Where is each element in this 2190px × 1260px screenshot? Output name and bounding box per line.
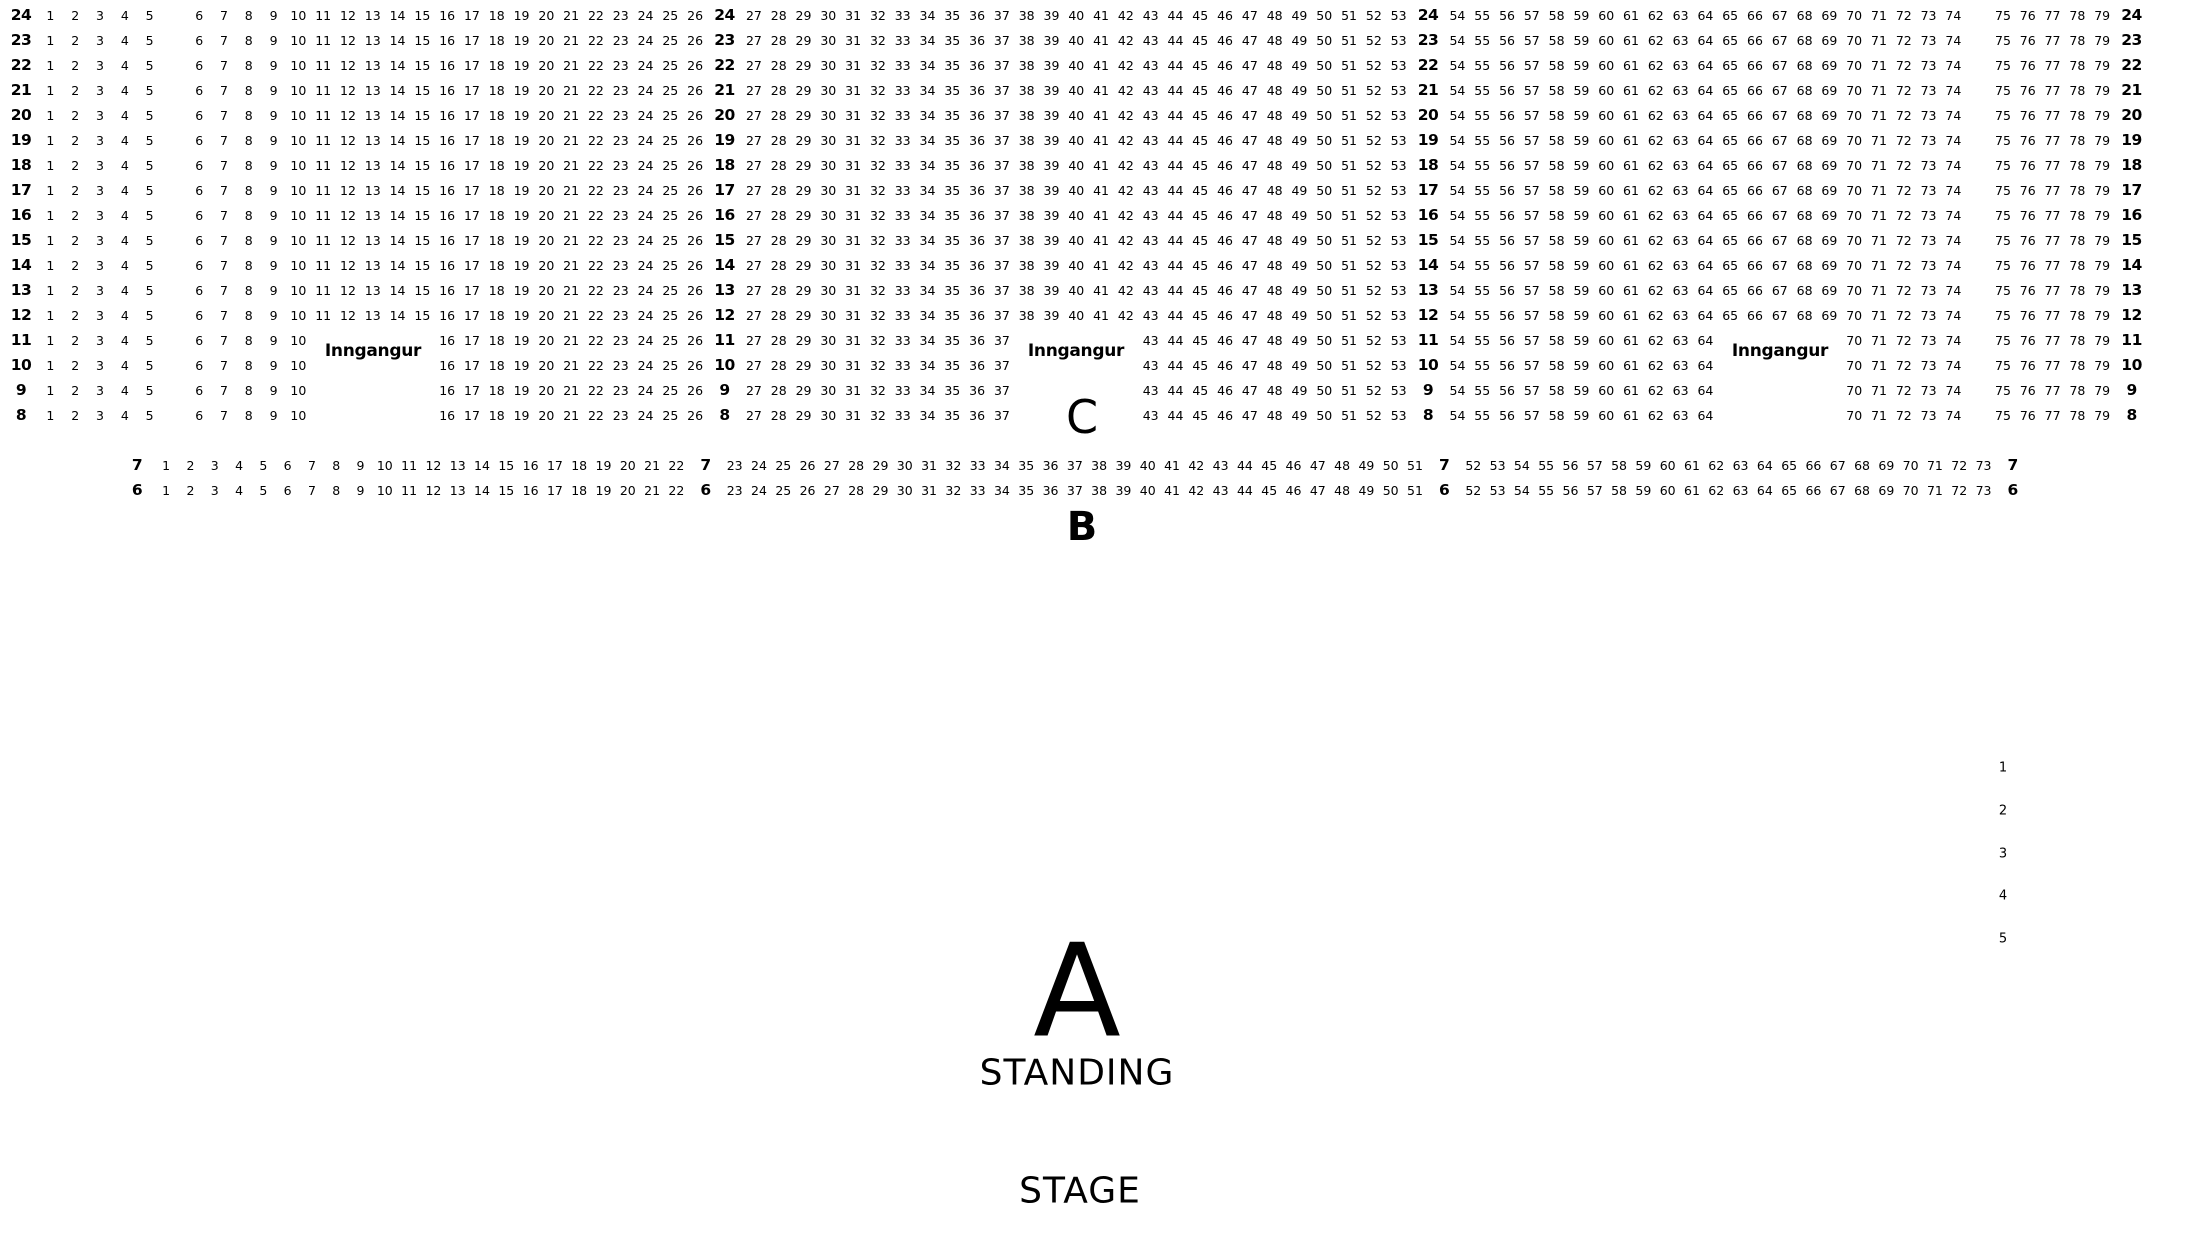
seat-row14-58[interactable]: 58 — [1544, 253, 1569, 278]
seat-row15-51[interactable]: 51 — [1337, 228, 1362, 253]
seat-row16-4[interactable]: 4 — [112, 203, 137, 228]
seat-row21-26[interactable]: 26 — [683, 78, 708, 103]
seat-row14-53[interactable]: 53 — [1386, 253, 1411, 278]
seat-row11-30[interactable]: 30 — [816, 328, 841, 353]
seat-row20-12[interactable]: 12 — [336, 103, 361, 128]
seat-row9-22[interactable]: 22 — [584, 378, 609, 403]
seat-row9-5[interactable]: 5 — [137, 378, 162, 403]
seat-row8-44[interactable]: 44 — [1163, 403, 1188, 428]
seat-row15-66[interactable]: 66 — [1743, 228, 1768, 253]
seat-row17-12[interactable]: 12 — [336, 178, 361, 203]
seat-row6-40[interactable]: 40 — [1136, 478, 1160, 503]
seat-row13-4[interactable]: 4 — [112, 278, 137, 303]
seat-row22-44[interactable]: 44 — [1163, 53, 1188, 78]
seat-row21-38[interactable]: 38 — [1014, 78, 1039, 103]
seat-row14-60[interactable]: 60 — [1594, 253, 1619, 278]
seat-row14-13[interactable]: 13 — [360, 253, 385, 278]
seat-row15-76[interactable]: 76 — [2015, 228, 2040, 253]
seat-row22-79[interactable]: 79 — [2090, 53, 2115, 78]
seat-row8-59[interactable]: 59 — [1569, 403, 1594, 428]
seat-row21-27[interactable]: 27 — [742, 78, 767, 103]
seat-row13-31[interactable]: 31 — [841, 278, 866, 303]
seat-row23-10[interactable]: 10 — [286, 28, 311, 53]
seat-row23-49[interactable]: 49 — [1287, 28, 1312, 53]
seat-row20-67[interactable]: 67 — [1767, 103, 1792, 128]
seat-row19-46[interactable]: 46 — [1213, 128, 1238, 153]
seat-row7-61[interactable]: 61 — [1680, 453, 1704, 478]
seat-row21-24[interactable]: 24 — [633, 78, 658, 103]
seat-row18-19[interactable]: 19 — [509, 153, 534, 178]
seat-row21-65[interactable]: 65 — [1718, 78, 1743, 103]
seat-row24-64[interactable]: 64 — [1693, 3, 1718, 28]
seat-row7-16[interactable]: 16 — [518, 453, 542, 478]
seat-row15-20[interactable]: 20 — [534, 228, 559, 253]
seat-row22-10[interactable]: 10 — [286, 53, 311, 78]
seat-row11-62[interactable]: 62 — [1643, 328, 1668, 353]
seat-row17-7[interactable]: 7 — [212, 178, 237, 203]
seat-row19-26[interactable]: 26 — [683, 128, 708, 153]
seat-row7-49[interactable]: 49 — [1354, 453, 1378, 478]
seat-row16-68[interactable]: 68 — [1792, 203, 1817, 228]
seat-row12-59[interactable]: 59 — [1569, 303, 1594, 328]
seat-row21-56[interactable]: 56 — [1495, 78, 1520, 103]
seat-row11-58[interactable]: 58 — [1544, 328, 1569, 353]
seat-row7-23[interactable]: 23 — [723, 453, 747, 478]
seat-row8-61[interactable]: 61 — [1619, 403, 1644, 428]
seat-row24-79[interactable]: 79 — [2090, 3, 2115, 28]
seat-row24-73[interactable]: 73 — [1916, 3, 1941, 28]
seat-row9-34[interactable]: 34 — [915, 378, 940, 403]
seat-row15-53[interactable]: 53 — [1386, 228, 1411, 253]
seat-row22-50[interactable]: 50 — [1312, 53, 1337, 78]
seat-row17-35[interactable]: 35 — [940, 178, 965, 203]
seat-row8-79[interactable]: 79 — [2090, 403, 2115, 428]
seat-row17-71[interactable]: 71 — [1867, 178, 1892, 203]
seat-row20-26[interactable]: 26 — [683, 103, 708, 128]
seat-row15-46[interactable]: 46 — [1213, 228, 1238, 253]
seat-row22-19[interactable]: 19 — [509, 53, 534, 78]
seat-row10-75[interactable]: 75 — [1991, 353, 2016, 378]
seat-row18-27[interactable]: 27 — [742, 153, 767, 178]
seat-row15-62[interactable]: 62 — [1643, 228, 1668, 253]
seat-row18-73[interactable]: 73 — [1916, 153, 1941, 178]
seat-row14-33[interactable]: 33 — [890, 253, 915, 278]
seat-row6-17[interactable]: 17 — [543, 478, 567, 503]
seat-row15-75[interactable]: 75 — [1991, 228, 2016, 253]
seat-row22-53[interactable]: 53 — [1386, 53, 1411, 78]
seat-row10-72[interactable]: 72 — [1891, 353, 1916, 378]
seat-row14-20[interactable]: 20 — [534, 253, 559, 278]
seat-row19-33[interactable]: 33 — [890, 128, 915, 153]
seat-row17-22[interactable]: 22 — [584, 178, 609, 203]
seat-row18-44[interactable]: 44 — [1163, 153, 1188, 178]
seat-row15-2[interactable]: 2 — [63, 228, 88, 253]
seat-row17-53[interactable]: 53 — [1386, 178, 1411, 203]
seat-row22-27[interactable]: 27 — [742, 53, 767, 78]
seat-row22-68[interactable]: 68 — [1792, 53, 1817, 78]
seat-row17-55[interactable]: 55 — [1470, 178, 1495, 203]
seat-row24-75[interactable]: 75 — [1991, 3, 2016, 28]
seat-row7-17[interactable]: 17 — [543, 453, 567, 478]
seat-row20-75[interactable]: 75 — [1991, 103, 2016, 128]
seat-row20-79[interactable]: 79 — [2090, 103, 2115, 128]
seat-row14-45[interactable]: 45 — [1188, 253, 1213, 278]
seat-row23-73[interactable]: 73 — [1916, 28, 1941, 53]
seat-row17-64[interactable]: 64 — [1693, 178, 1718, 203]
seat-row24-9[interactable]: 9 — [261, 3, 286, 28]
seat-row14-35[interactable]: 35 — [940, 253, 965, 278]
seat-row6-64[interactable]: 64 — [1753, 478, 1777, 503]
seat-row7-52[interactable]: 52 — [1461, 453, 1485, 478]
seat-row12-18[interactable]: 18 — [484, 303, 509, 328]
seat-row10-17[interactable]: 17 — [460, 353, 485, 378]
seat-row19-39[interactable]: 39 — [1039, 128, 1064, 153]
seat-row13-44[interactable]: 44 — [1163, 278, 1188, 303]
seat-row10-26[interactable]: 26 — [683, 353, 708, 378]
seat-row12-62[interactable]: 62 — [1643, 303, 1668, 328]
seat-row23-67[interactable]: 67 — [1767, 28, 1792, 53]
seat-row12-26[interactable]: 26 — [683, 303, 708, 328]
seat-row22-33[interactable]: 33 — [890, 53, 915, 78]
seat-row20-76[interactable]: 76 — [2015, 103, 2040, 128]
seat-row19-41[interactable]: 41 — [1089, 128, 1114, 153]
seat-row7-21[interactable]: 21 — [640, 453, 664, 478]
seat-row12-48[interactable]: 48 — [1262, 303, 1287, 328]
seat-row16-31[interactable]: 31 — [841, 203, 866, 228]
seat-row7-34[interactable]: 34 — [990, 453, 1014, 478]
seat-row16-24[interactable]: 24 — [633, 203, 658, 228]
seat-row9-57[interactable]: 57 — [1519, 378, 1544, 403]
seat-row12-67[interactable]: 67 — [1767, 303, 1792, 328]
seat-row16-63[interactable]: 63 — [1668, 203, 1693, 228]
seat-row14-8[interactable]: 8 — [236, 253, 261, 278]
seat-row19-73[interactable]: 73 — [1916, 128, 1941, 153]
seat-row21-33[interactable]: 33 — [890, 78, 915, 103]
seat-row9-75[interactable]: 75 — [1991, 378, 2016, 403]
seat-row24-14[interactable]: 14 — [385, 3, 410, 28]
seat-row24-27[interactable]: 27 — [742, 3, 767, 28]
seat-row24-54[interactable]: 54 — [1445, 3, 1470, 28]
seat-row20-18[interactable]: 18 — [484, 103, 509, 128]
seat-row12-42[interactable]: 42 — [1113, 303, 1138, 328]
seat-row8-33[interactable]: 33 — [890, 403, 915, 428]
seat-row24-77[interactable]: 77 — [2040, 3, 2065, 28]
seat-row14-32[interactable]: 32 — [866, 253, 891, 278]
seat-row6-19[interactable]: 19 — [591, 478, 615, 503]
seat-row15-9[interactable]: 9 — [261, 228, 286, 253]
seat-row17-1[interactable]: 1 — [38, 178, 63, 203]
seat-row14-61[interactable]: 61 — [1619, 253, 1644, 278]
seat-row6-47[interactable]: 47 — [1306, 478, 1330, 503]
seat-row22-16[interactable]: 16 — [435, 53, 460, 78]
seat-row20-47[interactable]: 47 — [1237, 103, 1262, 128]
seat-row18-29[interactable]: 29 — [791, 153, 816, 178]
seat-row24-57[interactable]: 57 — [1519, 3, 1544, 28]
seat-row15-8[interactable]: 8 — [236, 228, 261, 253]
seat-row23-57[interactable]: 57 — [1519, 28, 1544, 53]
seat-row11-35[interactable]: 35 — [940, 328, 965, 353]
seat-row13-48[interactable]: 48 — [1262, 278, 1287, 303]
seat-row18-18[interactable]: 18 — [484, 153, 509, 178]
seat-row15-45[interactable]: 45 — [1188, 228, 1213, 253]
seat-row21-75[interactable]: 75 — [1991, 78, 2016, 103]
seat-row9-76[interactable]: 76 — [2015, 378, 2040, 403]
seat-row16-38[interactable]: 38 — [1014, 203, 1039, 228]
seat-row15-54[interactable]: 54 — [1445, 228, 1470, 253]
seat-row18-42[interactable]: 42 — [1113, 153, 1138, 178]
seat-row17-46[interactable]: 46 — [1213, 178, 1238, 203]
seat-row13-73[interactable]: 73 — [1916, 278, 1941, 303]
seat-row23-35[interactable]: 35 — [940, 28, 965, 53]
seat-row6-39[interactable]: 39 — [1111, 478, 1135, 503]
seat-row19-48[interactable]: 48 — [1262, 128, 1287, 153]
seat-row19-25[interactable]: 25 — [658, 128, 683, 153]
seat-row9-31[interactable]: 31 — [841, 378, 866, 403]
seat-row17-19[interactable]: 19 — [509, 178, 534, 203]
seat-row17-32[interactable]: 32 — [866, 178, 891, 203]
seat-row22-13[interactable]: 13 — [360, 53, 385, 78]
seat-row7-10[interactable]: 10 — [373, 453, 397, 478]
seat-row6-12[interactable]: 12 — [421, 478, 445, 503]
seat-row6-44[interactable]: 44 — [1233, 478, 1257, 503]
seat-row16-42[interactable]: 42 — [1113, 203, 1138, 228]
seat-row21-15[interactable]: 15 — [410, 78, 435, 103]
seat-row24-11[interactable]: 11 — [311, 3, 336, 28]
seat-row14-66[interactable]: 66 — [1743, 253, 1768, 278]
seat-row24-74[interactable]: 74 — [1941, 3, 1966, 28]
seat-row24-33[interactable]: 33 — [890, 3, 915, 28]
seat-row10-22[interactable]: 22 — [584, 353, 609, 378]
seat-row23-52[interactable]: 52 — [1361, 28, 1386, 53]
seat-row13-43[interactable]: 43 — [1138, 278, 1163, 303]
seat-row14-51[interactable]: 51 — [1337, 253, 1362, 278]
seat-row8-18[interactable]: 18 — [484, 403, 509, 428]
seat-row8-45[interactable]: 45 — [1188, 403, 1213, 428]
seat-row14-57[interactable]: 57 — [1519, 253, 1544, 278]
seat-row17-78[interactable]: 78 — [2065, 178, 2090, 203]
seat-row14-6[interactable]: 6 — [187, 253, 212, 278]
seat-row15-56[interactable]: 56 — [1495, 228, 1520, 253]
seat-row15-48[interactable]: 48 — [1262, 228, 1287, 253]
seat-row15-12[interactable]: 12 — [336, 228, 361, 253]
seat-row10-36[interactable]: 36 — [965, 353, 990, 378]
seat-row6-27[interactable]: 27 — [820, 478, 844, 503]
seat-row20-34[interactable]: 34 — [915, 103, 940, 128]
seat-row6-59[interactable]: 59 — [1631, 478, 1655, 503]
seat-row18-48[interactable]: 48 — [1262, 153, 1287, 178]
seat-row18-75[interactable]: 75 — [1991, 153, 2016, 178]
seat-row24-1[interactable]: 1 — [38, 3, 63, 28]
seat-row15-60[interactable]: 60 — [1594, 228, 1619, 253]
seat-row14-26[interactable]: 26 — [683, 253, 708, 278]
seat-row8-21[interactable]: 21 — [559, 403, 584, 428]
seat-row22-1[interactable]: 1 — [38, 53, 63, 78]
seat-row12-76[interactable]: 76 — [2015, 303, 2040, 328]
seat-row18-17[interactable]: 17 — [460, 153, 485, 178]
seat-row18-10[interactable]: 10 — [286, 153, 311, 178]
seat-row20-43[interactable]: 43 — [1138, 103, 1163, 128]
seat-row24-21[interactable]: 21 — [559, 3, 584, 28]
seat-row13-29[interactable]: 29 — [791, 278, 816, 303]
seat-row8-9[interactable]: 9 — [261, 403, 286, 428]
seat-row24-37[interactable]: 37 — [989, 3, 1014, 28]
seat-row11-5[interactable]: 5 — [137, 328, 162, 353]
seat-row24-19[interactable]: 19 — [509, 3, 534, 28]
seat-row18-2[interactable]: 2 — [63, 153, 88, 178]
seat-row18-52[interactable]: 52 — [1361, 153, 1386, 178]
seat-row24-70[interactable]: 70 — [1842, 3, 1867, 28]
seat-row20-1[interactable]: 1 — [38, 103, 63, 128]
seat-row17-79[interactable]: 79 — [2090, 178, 2115, 203]
seat-row20-16[interactable]: 16 — [435, 103, 460, 128]
seat-row23-8[interactable]: 8 — [236, 28, 261, 53]
seat-row10-64[interactable]: 64 — [1693, 353, 1718, 378]
seat-row16-8[interactable]: 8 — [236, 203, 261, 228]
seat-row9-1[interactable]: 1 — [38, 378, 63, 403]
seat-row6-6[interactable]: 6 — [275, 478, 299, 503]
seat-row20-33[interactable]: 33 — [890, 103, 915, 128]
seat-row13-63[interactable]: 63 — [1668, 278, 1693, 303]
seat-row16-5[interactable]: 5 — [137, 203, 162, 228]
seat-row10-25[interactable]: 25 — [658, 353, 683, 378]
seat-row18-26[interactable]: 26 — [683, 153, 708, 178]
seat-row18-65[interactable]: 65 — [1718, 153, 1743, 178]
seat-row20-8[interactable]: 8 — [236, 103, 261, 128]
seat-row14-29[interactable]: 29 — [791, 253, 816, 278]
seat-row15-21[interactable]: 21 — [559, 228, 584, 253]
seat-row13-27[interactable]: 27 — [742, 278, 767, 303]
seat-row9-60[interactable]: 60 — [1594, 378, 1619, 403]
seat-row16-53[interactable]: 53 — [1386, 203, 1411, 228]
seat-row24-12[interactable]: 12 — [336, 3, 361, 28]
seat-row13-47[interactable]: 47 — [1237, 278, 1262, 303]
seat-row11-61[interactable]: 61 — [1619, 328, 1644, 353]
seat-row11-43[interactable]: 43 — [1138, 328, 1163, 353]
seat-row10-73[interactable]: 73 — [1916, 353, 1941, 378]
seat-row23-45[interactable]: 45 — [1188, 28, 1213, 53]
seat-row11-55[interactable]: 55 — [1470, 328, 1495, 353]
seat-row9-18[interactable]: 18 — [484, 378, 509, 403]
seat-row23-48[interactable]: 48 — [1262, 28, 1287, 53]
seat-row8-1[interactable]: 1 — [38, 403, 63, 428]
seat-row24-32[interactable]: 32 — [866, 3, 891, 28]
seat-row10-1[interactable]: 1 — [38, 353, 63, 378]
seat-row10-62[interactable]: 62 — [1643, 353, 1668, 378]
seat-row7-1[interactable]: 1 — [154, 453, 178, 478]
seat-row20-24[interactable]: 24 — [633, 103, 658, 128]
seat-row21-67[interactable]: 67 — [1767, 78, 1792, 103]
seat-row14-42[interactable]: 42 — [1113, 253, 1138, 278]
seat-row9-37[interactable]: 37 — [990, 378, 1015, 403]
seat-row19-4[interactable]: 4 — [112, 128, 137, 153]
seat-row10-24[interactable]: 24 — [633, 353, 658, 378]
seat-row10-29[interactable]: 29 — [791, 353, 816, 378]
seat-row16-49[interactable]: 49 — [1287, 203, 1312, 228]
seat-row16-41[interactable]: 41 — [1089, 203, 1114, 228]
seat-row12-16[interactable]: 16 — [435, 303, 460, 328]
seat-row24-62[interactable]: 62 — [1643, 3, 1668, 28]
seat-row20-15[interactable]: 15 — [410, 103, 435, 128]
seat-row13-12[interactable]: 12 — [336, 278, 361, 303]
seat-row9-19[interactable]: 19 — [509, 378, 534, 403]
seat-row21-48[interactable]: 48 — [1262, 78, 1287, 103]
seat-row10-63[interactable]: 63 — [1668, 353, 1693, 378]
seat-row19-56[interactable]: 56 — [1495, 128, 1520, 153]
seat-row24-76[interactable]: 76 — [2015, 3, 2040, 28]
seat-row20-50[interactable]: 50 — [1312, 103, 1337, 128]
seat-row15-77[interactable]: 77 — [2040, 228, 2065, 253]
seat-row22-31[interactable]: 31 — [841, 53, 866, 78]
seat-row6-7[interactable]: 7 — [300, 478, 324, 503]
seat-row17-14[interactable]: 14 — [385, 178, 410, 203]
seat-row6-26[interactable]: 26 — [795, 478, 819, 503]
seat-row10-50[interactable]: 50 — [1312, 353, 1337, 378]
seat-row15-61[interactable]: 61 — [1619, 228, 1644, 253]
seat-row21-29[interactable]: 29 — [791, 78, 816, 103]
seat-row11-7[interactable]: 7 — [212, 328, 237, 353]
seat-row16-66[interactable]: 66 — [1743, 203, 1768, 228]
seat-row8-75[interactable]: 75 — [1991, 403, 2016, 428]
seat-row22-6[interactable]: 6 — [187, 53, 212, 78]
seat-row20-57[interactable]: 57 — [1519, 103, 1544, 128]
seat-row13-19[interactable]: 19 — [509, 278, 534, 303]
seat-row15-19[interactable]: 19 — [509, 228, 534, 253]
seat-row20-3[interactable]: 3 — [88, 103, 113, 128]
seat-row21-68[interactable]: 68 — [1792, 78, 1817, 103]
seat-row24-40[interactable]: 40 — [1064, 3, 1089, 28]
seat-row16-55[interactable]: 55 — [1470, 203, 1495, 228]
seat-row17-37[interactable]: 37 — [989, 178, 1014, 203]
seat-row12-10[interactable]: 10 — [286, 303, 311, 328]
seat-row22-18[interactable]: 18 — [484, 53, 509, 78]
seat-row10-6[interactable]: 6 — [187, 353, 212, 378]
seat-row17-70[interactable]: 70 — [1842, 178, 1867, 203]
seat-row12-50[interactable]: 50 — [1312, 303, 1337, 328]
seat-row6-2[interactable]: 2 — [178, 478, 202, 503]
seat-row12-8[interactable]: 8 — [236, 303, 261, 328]
seat-row17-21[interactable]: 21 — [559, 178, 584, 203]
seat-row21-28[interactable]: 28 — [766, 78, 791, 103]
seat-row14-2[interactable]: 2 — [63, 253, 88, 278]
seat-row14-70[interactable]: 70 — [1842, 253, 1867, 278]
seat-row6-32[interactable]: 32 — [941, 478, 965, 503]
seat-row19-66[interactable]: 66 — [1743, 128, 1768, 153]
seat-row20-25[interactable]: 25 — [658, 103, 683, 128]
seat-row23-76[interactable]: 76 — [2015, 28, 2040, 53]
seat-row20-27[interactable]: 27 — [742, 103, 767, 128]
seat-row6-23[interactable]: 23 — [723, 478, 747, 503]
seat-row20-11[interactable]: 11 — [311, 103, 336, 128]
seat-row7-43[interactable]: 43 — [1208, 453, 1232, 478]
seat-row18-57[interactable]: 57 — [1519, 153, 1544, 178]
seat-row14-18[interactable]: 18 — [484, 253, 509, 278]
seat-row15-44[interactable]: 44 — [1163, 228, 1188, 253]
seat-row19-34[interactable]: 34 — [915, 128, 940, 153]
seat-row18-46[interactable]: 46 — [1213, 153, 1238, 178]
seat-row18-72[interactable]: 72 — [1891, 153, 1916, 178]
seat-row10-71[interactable]: 71 — [1867, 353, 1892, 378]
seat-row18-23[interactable]: 23 — [608, 153, 633, 178]
seat-row12-4[interactable]: 4 — [112, 303, 137, 328]
seat-row12-46[interactable]: 46 — [1213, 303, 1238, 328]
seat-row19-29[interactable]: 29 — [791, 128, 816, 153]
seat-row16-6[interactable]: 6 — [187, 203, 212, 228]
seat-row22-61[interactable]: 61 — [1619, 53, 1644, 78]
seat-row20-59[interactable]: 59 — [1569, 103, 1594, 128]
seat-row6-36[interactable]: 36 — [1038, 478, 1062, 503]
seat-row23-33[interactable]: 33 — [890, 28, 915, 53]
seat-row9-72[interactable]: 72 — [1891, 378, 1916, 403]
